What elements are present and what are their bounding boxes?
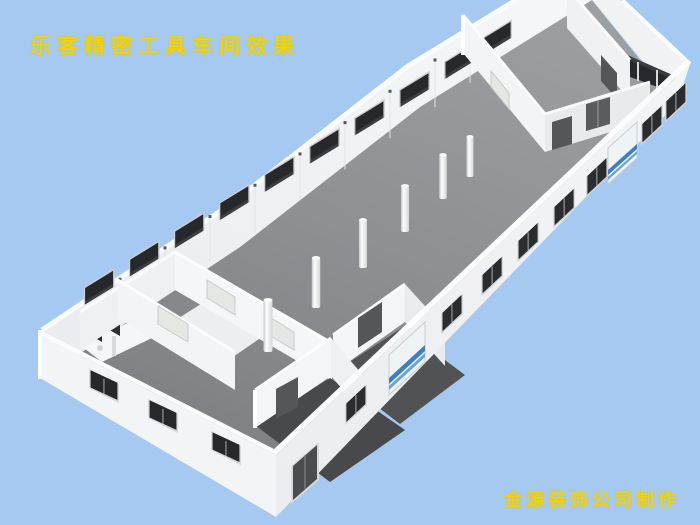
column-top	[312, 256, 321, 260]
credit-caption: 金源装饰公司制作	[504, 486, 680, 512]
support-column	[359, 220, 367, 268]
column-top	[401, 184, 409, 188]
column-top	[439, 153, 447, 157]
wall-seam-clip	[254, 184, 257, 187]
support-column	[312, 258, 321, 308]
workshop-rendering-page: 乐客精密工具车间效果 金源装饰公司制作	[0, 0, 700, 525]
support-column	[401, 186, 409, 232]
support-column	[264, 300, 273, 352]
support-column	[439, 155, 447, 199]
column-top	[467, 135, 474, 139]
wall-seam-clip	[344, 121, 347, 124]
wall-seam-clip	[164, 246, 167, 249]
building-3d-rendering	[0, 0, 700, 525]
wall-seam-clip	[299, 152, 302, 155]
column-top	[359, 218, 367, 222]
column-top	[264, 298, 273, 302]
support-column	[467, 137, 474, 177]
wall-seam-clip	[434, 58, 437, 61]
wall-seam-clip	[389, 90, 392, 93]
page-title: 乐客精密工具车间效果	[30, 30, 300, 60]
wall-seam-clip	[209, 215, 212, 218]
